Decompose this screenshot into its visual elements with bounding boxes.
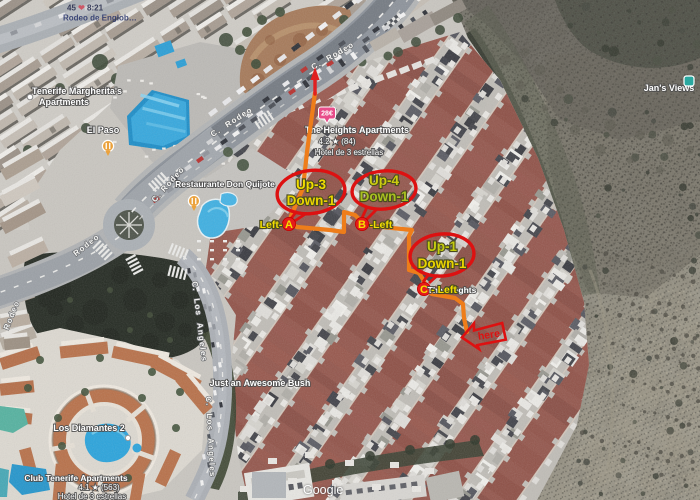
svg-text:4.1 ★ (563): 4.1 ★ (563) <box>78 483 120 492</box>
svg-text:Google: Google <box>303 483 343 497</box>
svg-text:Left-: Left- <box>260 219 283 231</box>
svg-text:Hotel de 3 estrellas: Hotel de 3 estrellas <box>315 148 383 157</box>
svg-text:Down-1: Down-1 <box>418 256 467 271</box>
svg-text:Up-3: Up-3 <box>296 177 326 192</box>
svg-text:Up-4: Up-4 <box>369 173 399 188</box>
svg-text:Down-1: Down-1 <box>287 193 336 208</box>
svg-text:28€: 28€ <box>321 111 333 118</box>
svg-text:- Left: - Left <box>431 284 457 296</box>
svg-text:Los Diamantes 2: Los Diamantes 2 <box>53 423 125 433</box>
svg-text:Just an Awesome Bush: Just an Awesome Bush <box>210 378 311 388</box>
svg-text:Up-1: Up-1 <box>427 239 457 254</box>
svg-text:45 ❤ 8:21: 45 ❤ 8:21 <box>67 4 104 13</box>
svg-text:Apartments: Apartments <box>39 97 89 107</box>
svg-text:B: B <box>358 219 366 231</box>
svg-text:El Paso: El Paso <box>87 125 120 135</box>
svg-text:Hotel de 3 estrellas: Hotel de 3 estrellas <box>58 492 126 500</box>
svg-text:Tenerife Margherita's: Tenerife Margherita's <box>32 86 122 96</box>
svg-text:The Heights Apartments: The Heights Apartments <box>305 125 409 135</box>
svg-text:Down-1: Down-1 <box>360 189 409 204</box>
svg-text:Club Tenerife Apartments: Club Tenerife Apartments <box>24 473 128 483</box>
svg-text:A: A <box>285 219 293 231</box>
svg-text:4.2 ★ (84): 4.2 ★ (84) <box>319 137 356 146</box>
svg-text:Rodeo de Englob…: Rodeo de Englob… <box>63 14 137 23</box>
svg-text:-Left: -Left <box>370 219 393 231</box>
svg-text:Restaurante Don Quijote: Restaurante Don Quijote <box>175 179 275 189</box>
